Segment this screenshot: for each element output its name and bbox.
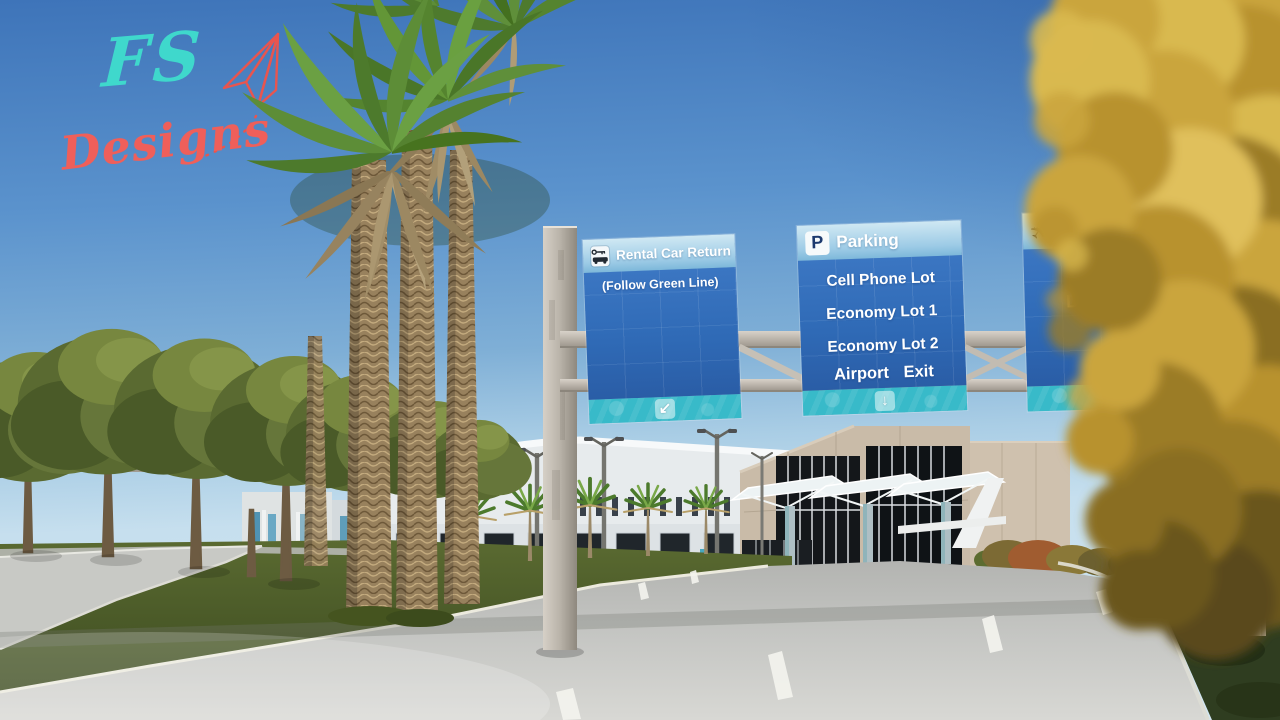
airport-scene-screenshot: FS Designs <box>0 0 1280 720</box>
autumn-foreground-tree <box>0 0 1280 720</box>
